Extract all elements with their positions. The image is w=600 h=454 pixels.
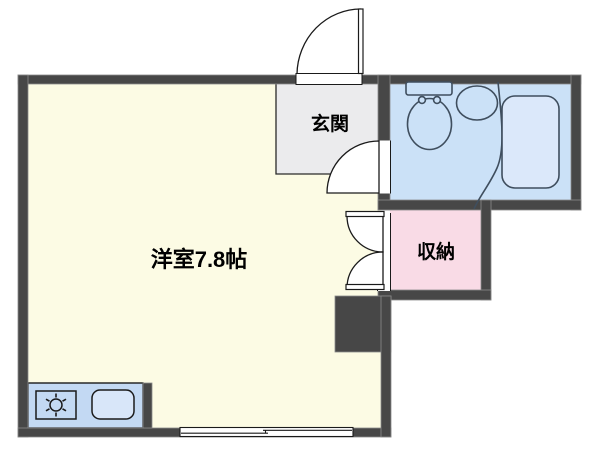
wall-segment: [362, 75, 581, 84]
toilet-icon: [406, 82, 452, 150]
entrance-threshold: [296, 74, 362, 85]
wall-segment: [481, 200, 491, 300]
wall-segment: [18, 75, 296, 84]
wall-segment: [571, 75, 581, 210]
wall-segment: [378, 200, 581, 210]
wall-segment: [378, 75, 390, 141]
wall-segment: [143, 383, 152, 428]
bathtub-icon: [502, 96, 559, 188]
storage-label: 収納: [417, 240, 455, 263]
wall-segment: [378, 290, 491, 300]
main-room-label: 洋室7.8帖: [151, 247, 248, 272]
sliding-window-icon: [180, 428, 353, 437]
entrance-door-swing-icon: [297, 9, 363, 74]
wall-segment: [381, 296, 391, 437]
wall-segment: [18, 75, 28, 437]
wash-basin-icon: [457, 86, 498, 120]
floor-plan-canvas: 洋室7.8帖 玄関 収納: [0, 0, 600, 454]
entrance-label: 玄関: [311, 112, 349, 135]
kitchen-sink-icon: [92, 390, 134, 419]
floor-plan: 洋室7.8帖 玄関 収納: [0, 0, 600, 454]
